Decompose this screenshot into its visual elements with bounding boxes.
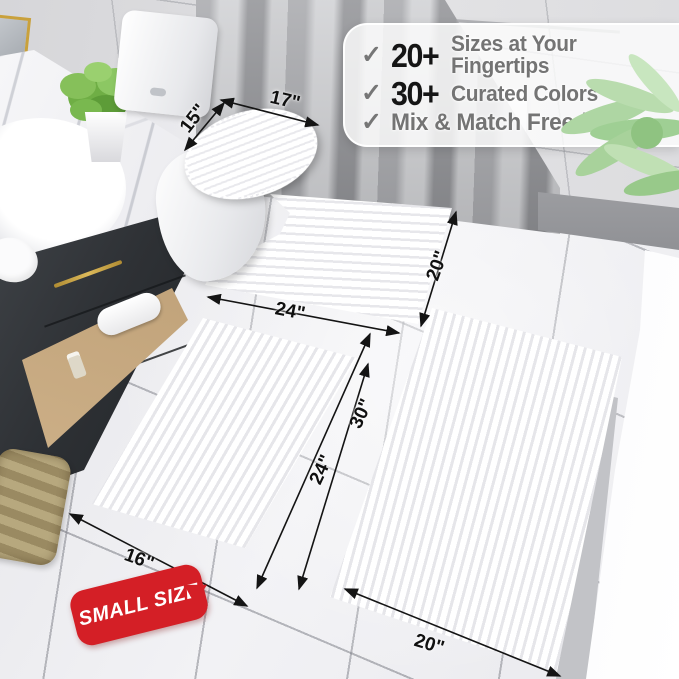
toilet-tank bbox=[113, 9, 219, 118]
check-icon: ✓ bbox=[361, 43, 382, 68]
bathroom-product-photo: 17" 15" 24" 20" 24" 30" 16" 20" ✓ 20+ Si… bbox=[0, 0, 679, 679]
stat-value: 30+ bbox=[391, 77, 438, 110]
check-icon: ✓ bbox=[361, 110, 382, 135]
check-icon: ✓ bbox=[361, 81, 382, 106]
corner-plant bbox=[545, 38, 679, 208]
stat-value: 20+ bbox=[391, 39, 438, 72]
flush-handle bbox=[150, 87, 167, 97]
